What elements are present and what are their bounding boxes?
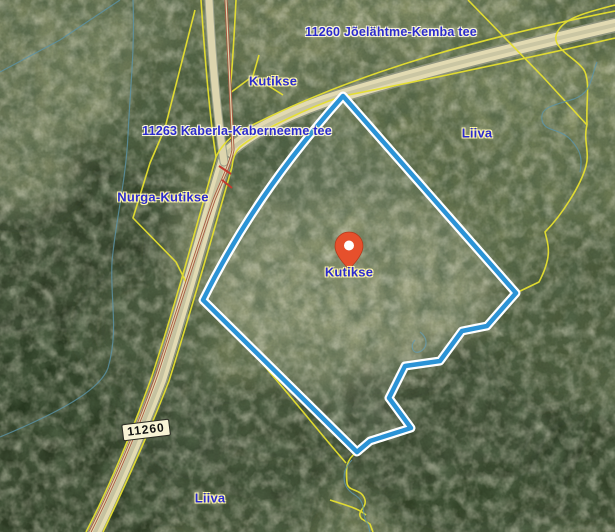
map-canvas[interactable]: 11260 Jõelähtme-Kemba tee Kutikse 11263 … [0,0,615,532]
marker-hole [344,241,354,251]
